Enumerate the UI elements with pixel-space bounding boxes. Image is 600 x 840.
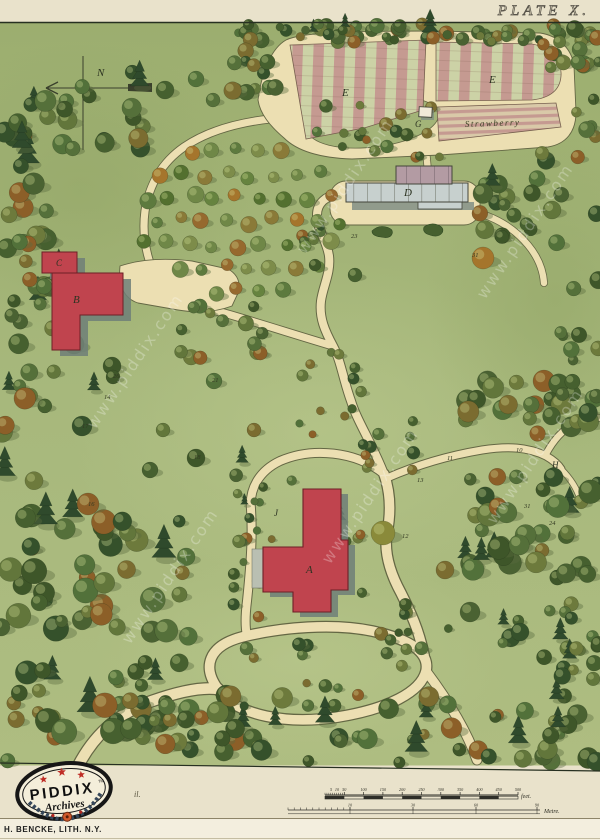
structure-G bbox=[419, 107, 434, 120]
plan-number: 18 bbox=[194, 454, 201, 461]
scale-tick-label: 450 bbox=[496, 787, 503, 792]
scale-tick-label: 400 bbox=[476, 787, 483, 792]
plan-number: 21 bbox=[212, 377, 219, 384]
plan-number: 12 bbox=[402, 533, 409, 540]
scale-tick-label: 100 bbox=[360, 787, 367, 792]
scale-tick-label: 200 bbox=[399, 787, 406, 792]
scale-tick-label: 300 bbox=[438, 787, 445, 792]
tree bbox=[579, 480, 600, 504]
scale-tick-label: 350 bbox=[457, 787, 464, 792]
plan-number: 16 bbox=[88, 501, 95, 508]
compass-letter: N bbox=[96, 67, 105, 79]
plan-number: 23 bbox=[351, 233, 358, 240]
plan-number: 13 bbox=[417, 477, 424, 484]
lithograph-plan: N E E Strawberry G D C B A H J 233126211… bbox=[0, 0, 600, 840]
metre-unit-label: Metre. bbox=[543, 809, 560, 815]
lithographer-credit: H. BENCKE, LITH. N.Y. bbox=[4, 825, 102, 834]
label-bed-E-left: E bbox=[341, 87, 349, 99]
caption-fragment: il. bbox=[134, 790, 140, 799]
scale-tick-label: 150 bbox=[380, 787, 387, 792]
tree bbox=[586, 655, 600, 671]
plan-number: 11 bbox=[447, 455, 453, 462]
label-B: B bbox=[73, 294, 80, 306]
label-H: H bbox=[551, 460, 559, 470]
scale-tick-label: 500 bbox=[515, 787, 522, 792]
plan-number: 31 bbox=[471, 252, 479, 259]
scale-tick-label: 5 bbox=[330, 787, 332, 792]
label-bed-E-right: E bbox=[488, 74, 496, 86]
plan-number: 24 bbox=[549, 520, 556, 527]
bed-E-right bbox=[436, 42, 561, 101]
plan-number: 31 bbox=[523, 503, 531, 510]
label-G: G bbox=[415, 119, 422, 129]
feet-unit-label: feet. bbox=[521, 793, 531, 800]
label-C: C bbox=[56, 258, 63, 268]
plan-number: 10 bbox=[516, 447, 523, 454]
label-A: A bbox=[305, 564, 313, 576]
tree bbox=[586, 672, 600, 686]
label-D: D bbox=[403, 187, 412, 199]
label-strawberry: Strawberry bbox=[465, 117, 521, 129]
scale-tick-label: 250 bbox=[418, 787, 425, 792]
plate-title: PLATE X. bbox=[497, 3, 590, 19]
logo-tm: TM bbox=[98, 778, 104, 784]
